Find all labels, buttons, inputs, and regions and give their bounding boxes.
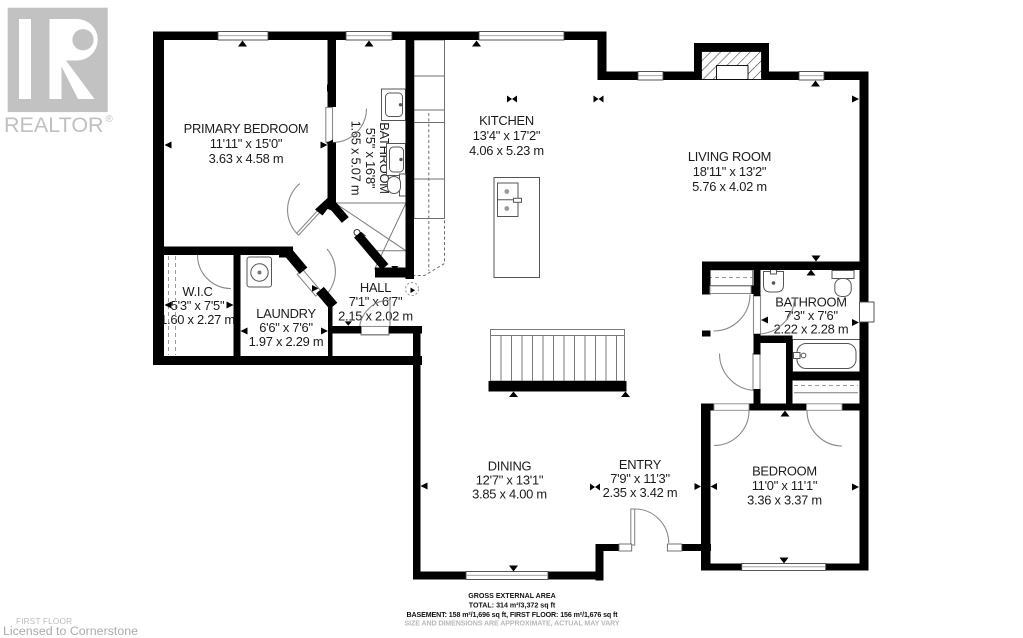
svg-text:HALL: HALL <box>360 280 391 295</box>
svg-text:3.85 x 4.00 m: 3.85 x 4.00 m <box>472 487 547 502</box>
svg-text:LAUNDRY: LAUNDRY <box>256 306 316 321</box>
svg-text:12'7" x 13'1": 12'7" x 13'1" <box>476 473 544 488</box>
svg-text:6'6" x 7'6": 6'6" x 7'6" <box>259 320 313 335</box>
svg-text:2.15 x 2.02 m: 2.15 x 2.02 m <box>338 309 413 324</box>
svg-text:3.63 x 4.58 m: 3.63 x 4.58 m <box>209 151 284 166</box>
svg-text:SIZE AND DIMENSIONS ARE APPROX: SIZE AND DIMENSIONS ARE APPROXIMATE, ACT… <box>405 620 620 628</box>
svg-text:2.35 x 3.42 m: 2.35 x 3.42 m <box>603 485 678 500</box>
svg-text:ENTRY: ENTRY <box>619 457 662 472</box>
svg-text:W.I.C: W.I.C <box>182 284 212 299</box>
svg-text:TOTAL: 314 m²/3,372 sq ft: TOTAL: 314 m²/3,372 sq ft <box>469 602 556 610</box>
svg-text:5.76 x 4.02 m: 5.76 x 4.02 m <box>692 179 767 194</box>
svg-text:BEDROOM: BEDROOM <box>752 464 817 479</box>
svg-text:4.06 x 5.23 m: 4.06 x 5.23 m <box>469 143 544 158</box>
svg-text:11'11" x 15'0": 11'11" x 15'0" <box>210 136 283 151</box>
svg-text:18'11" x 13'2": 18'11" x 13'2" <box>693 164 767 179</box>
svg-text:BASEMENT: 158 m²/1,696 sq ft,: BASEMENT: 158 m²/1,696 sq ft, FIRST FLOO… <box>406 611 618 619</box>
svg-text:PRIMARY BEDROOM: PRIMARY BEDROOM <box>184 121 309 136</box>
svg-text:3.36 x 3.37 m: 3.36 x 3.37 m <box>747 493 822 508</box>
svg-text:DINING: DINING <box>488 459 532 474</box>
svg-text:5'3" x 7'5": 5'3" x 7'5" <box>171 298 225 313</box>
svg-text:GROSS EXTERNAL AREA: GROSS EXTERNAL AREA <box>468 592 556 600</box>
svg-text:LIVING ROOM: LIVING ROOM <box>688 149 771 164</box>
svg-text:13'4" x 17'2": 13'4" x 17'2" <box>473 128 541 143</box>
svg-text:Licensed to Cornerstone: Licensed to Cornerstone <box>3 624 138 638</box>
svg-text:1.65 x 5.07 m: 1.65 x 5.07 m <box>349 121 364 196</box>
svg-text:11'0" x 11'1": 11'0" x 11'1" <box>752 478 818 493</box>
svg-text:2.22 x 2.28 m: 2.22 x 2.28 m <box>774 322 849 337</box>
svg-text:KITCHEN: KITCHEN <box>479 113 534 128</box>
svg-text:5'5" x 16'8": 5'5" x 16'8" <box>363 128 378 189</box>
svg-text:1.97 x 2.29 m: 1.97 x 2.29 m <box>249 334 324 349</box>
svg-text:®: ® <box>106 114 114 125</box>
svg-text:REALTOR: REALTOR <box>4 113 104 137</box>
svg-text:7'1" x 6'7": 7'1" x 6'7" <box>349 294 403 309</box>
svg-text:7'9" x 11'3": 7'9" x 11'3" <box>610 471 670 486</box>
svg-text:1.60 x 2.27 m: 1.60 x 2.27 m <box>160 312 235 327</box>
